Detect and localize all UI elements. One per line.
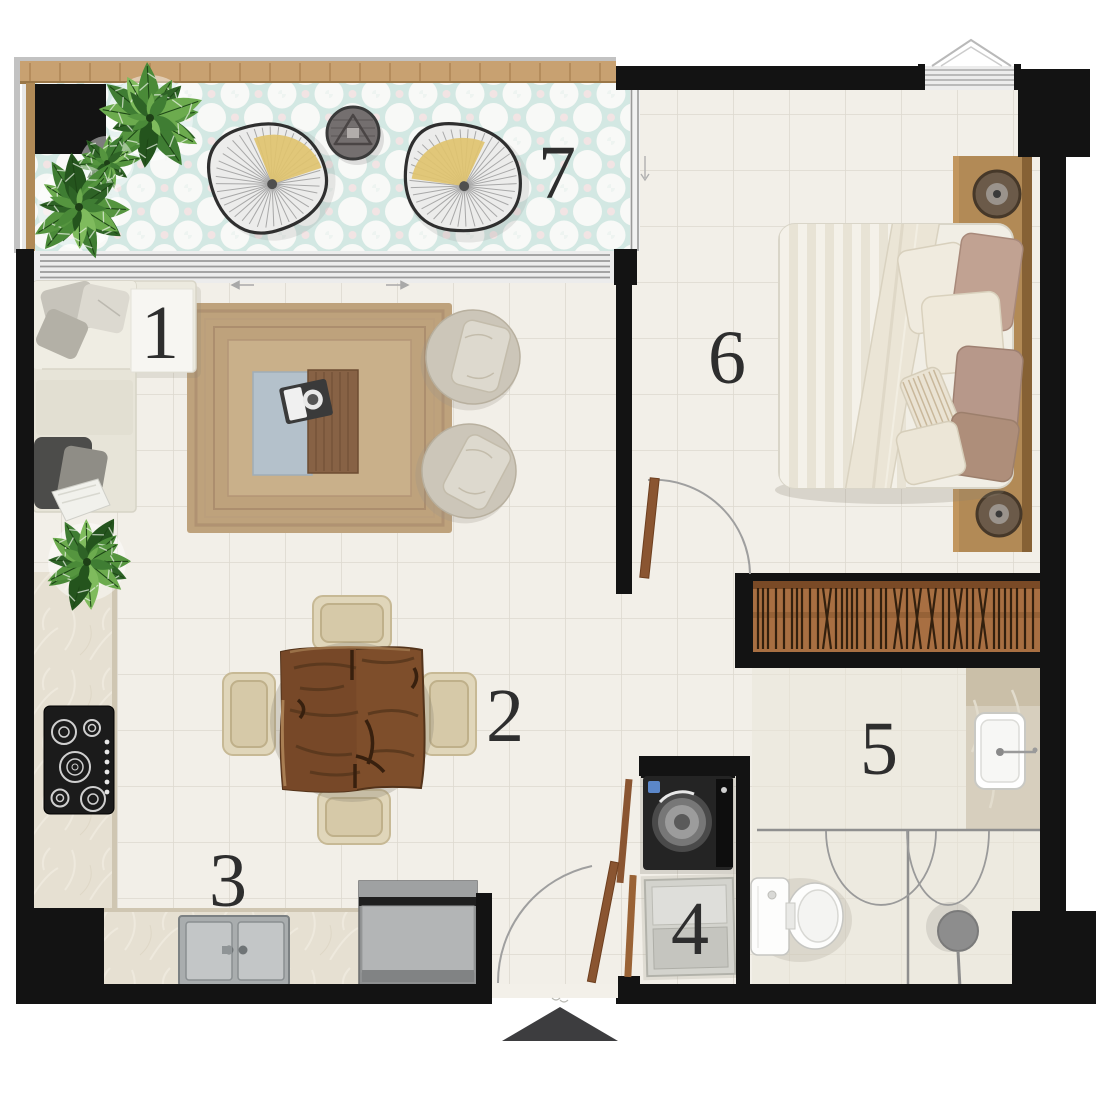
svg-text:5: 5 (860, 707, 898, 791)
svg-text:2: 2 (486, 674, 524, 758)
svg-text:1: 1 (141, 291, 179, 375)
svg-text:4: 4 (671, 887, 709, 971)
svg-text:7: 7 (538, 131, 576, 215)
svg-text:6: 6 (708, 316, 746, 400)
svg-text:3: 3 (209, 839, 247, 923)
